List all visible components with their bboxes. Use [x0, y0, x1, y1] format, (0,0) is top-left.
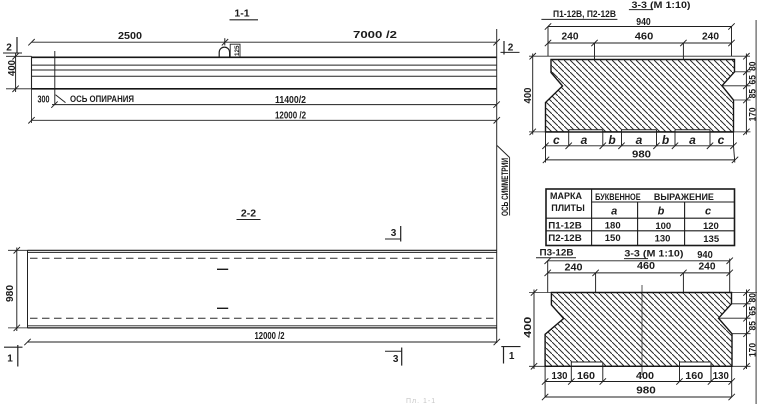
- svg-text:b: b: [658, 206, 665, 218]
- svg-text:ВЫРАЖЕНИЕ: ВЫРАЖЕНИЕ: [654, 192, 714, 202]
- svg-text:80: 80: [747, 61, 757, 71]
- svg-text:65: 65: [747, 75, 757, 85]
- svg-text:БУКВЕННОЕ: БУКВЕННОЕ: [595, 192, 641, 202]
- svg-text:100: 100: [655, 221, 671, 232]
- svg-text:400: 400: [523, 316, 534, 338]
- svg-text:940: 940: [636, 17, 651, 28]
- svg-text:a: a: [636, 133, 643, 147]
- svg-text:130: 130: [655, 233, 671, 244]
- svg-text:130: 130: [552, 371, 568, 382]
- svg-text:3-3 (М 1:10): 3-3 (М 1:10): [624, 248, 683, 259]
- svg-text:170: 170: [747, 343, 757, 357]
- svg-text:400: 400: [523, 87, 534, 103]
- svg-text:180: 180: [605, 221, 621, 232]
- svg-text:135: 135: [703, 234, 720, 245]
- svg-text:3: 3: [391, 228, 397, 239]
- svg-text:ПЛИТЫ: ПЛИТЫ: [551, 203, 585, 213]
- svg-text:c: c: [705, 206, 711, 218]
- svg-text:150: 150: [605, 233, 621, 244]
- svg-text:a: a: [581, 133, 588, 147]
- svg-text:160: 160: [577, 371, 595, 382]
- svg-text:П2-12В: П2-12В: [548, 233, 582, 244]
- svg-text:П1-12В, П2-12В: П1-12В, П2-12В: [553, 9, 616, 20]
- svg-text:240: 240: [702, 32, 719, 43]
- svg-text:1: 1: [7, 353, 13, 364]
- svg-text:980: 980: [632, 149, 651, 160]
- svg-text:11400/2: 11400/2: [275, 95, 306, 106]
- svg-text:2: 2: [6, 43, 12, 54]
- svg-text:12000 /2: 12000 /2: [275, 110, 306, 121]
- svg-text:2-2: 2-2: [241, 208, 256, 220]
- svg-text:c: c: [718, 133, 725, 147]
- svg-text:400: 400: [7, 60, 18, 76]
- svg-text:240: 240: [565, 262, 583, 273]
- svg-text:980: 980: [5, 285, 16, 302]
- svg-text:130: 130: [713, 371, 729, 382]
- svg-text:МАРКА: МАРКА: [550, 191, 582, 201]
- svg-text:460: 460: [635, 32, 654, 43]
- svg-text:85: 85: [747, 89, 757, 99]
- svg-text:a: a: [689, 133, 696, 147]
- svg-text:240: 240: [562, 32, 579, 43]
- svg-text:85: 85: [747, 321, 757, 331]
- svg-text:7000 /2: 7000 /2: [353, 30, 398, 41]
- svg-text:c: c: [553, 133, 560, 147]
- svg-text:80: 80: [747, 293, 757, 303]
- svg-text:П3-12В: П3-12В: [540, 247, 574, 258]
- svg-text:300: 300: [38, 94, 50, 105]
- svg-text:120: 120: [703, 221, 719, 232]
- svg-text:a: a: [611, 205, 617, 217]
- svg-text:940: 940: [697, 250, 713, 261]
- svg-text:125: 125: [234, 45, 241, 56]
- svg-text:460: 460: [637, 261, 655, 272]
- svg-text:П1-12В: П1-12В: [548, 221, 582, 232]
- svg-text:170: 170: [747, 107, 757, 121]
- svg-text:1: 1: [509, 351, 515, 362]
- svg-text:12000 /2: 12000 /2: [255, 331, 285, 342]
- svg-text:1-1: 1-1: [234, 8, 249, 20]
- svg-text:b: b: [608, 133, 615, 147]
- svg-text:b: b: [662, 133, 669, 147]
- svg-text:65: 65: [747, 306, 757, 316]
- svg-text:Пл. 1-1: Пл. 1-1: [406, 398, 436, 404]
- svg-text:980: 980: [636, 386, 656, 397]
- svg-text:240: 240: [699, 262, 716, 273]
- svg-text:160: 160: [685, 371, 703, 382]
- svg-text:2500: 2500: [118, 31, 142, 42]
- svg-text:3: 3: [393, 354, 399, 365]
- svg-text:400: 400: [636, 371, 654, 382]
- svg-text:ОСЬ СИММЕТРИИ: ОСЬ СИММЕТРИИ: [500, 158, 510, 216]
- svg-text:ОСЬ ОПИРАНИЯ: ОСЬ ОПИРАНИЯ: [70, 94, 134, 104]
